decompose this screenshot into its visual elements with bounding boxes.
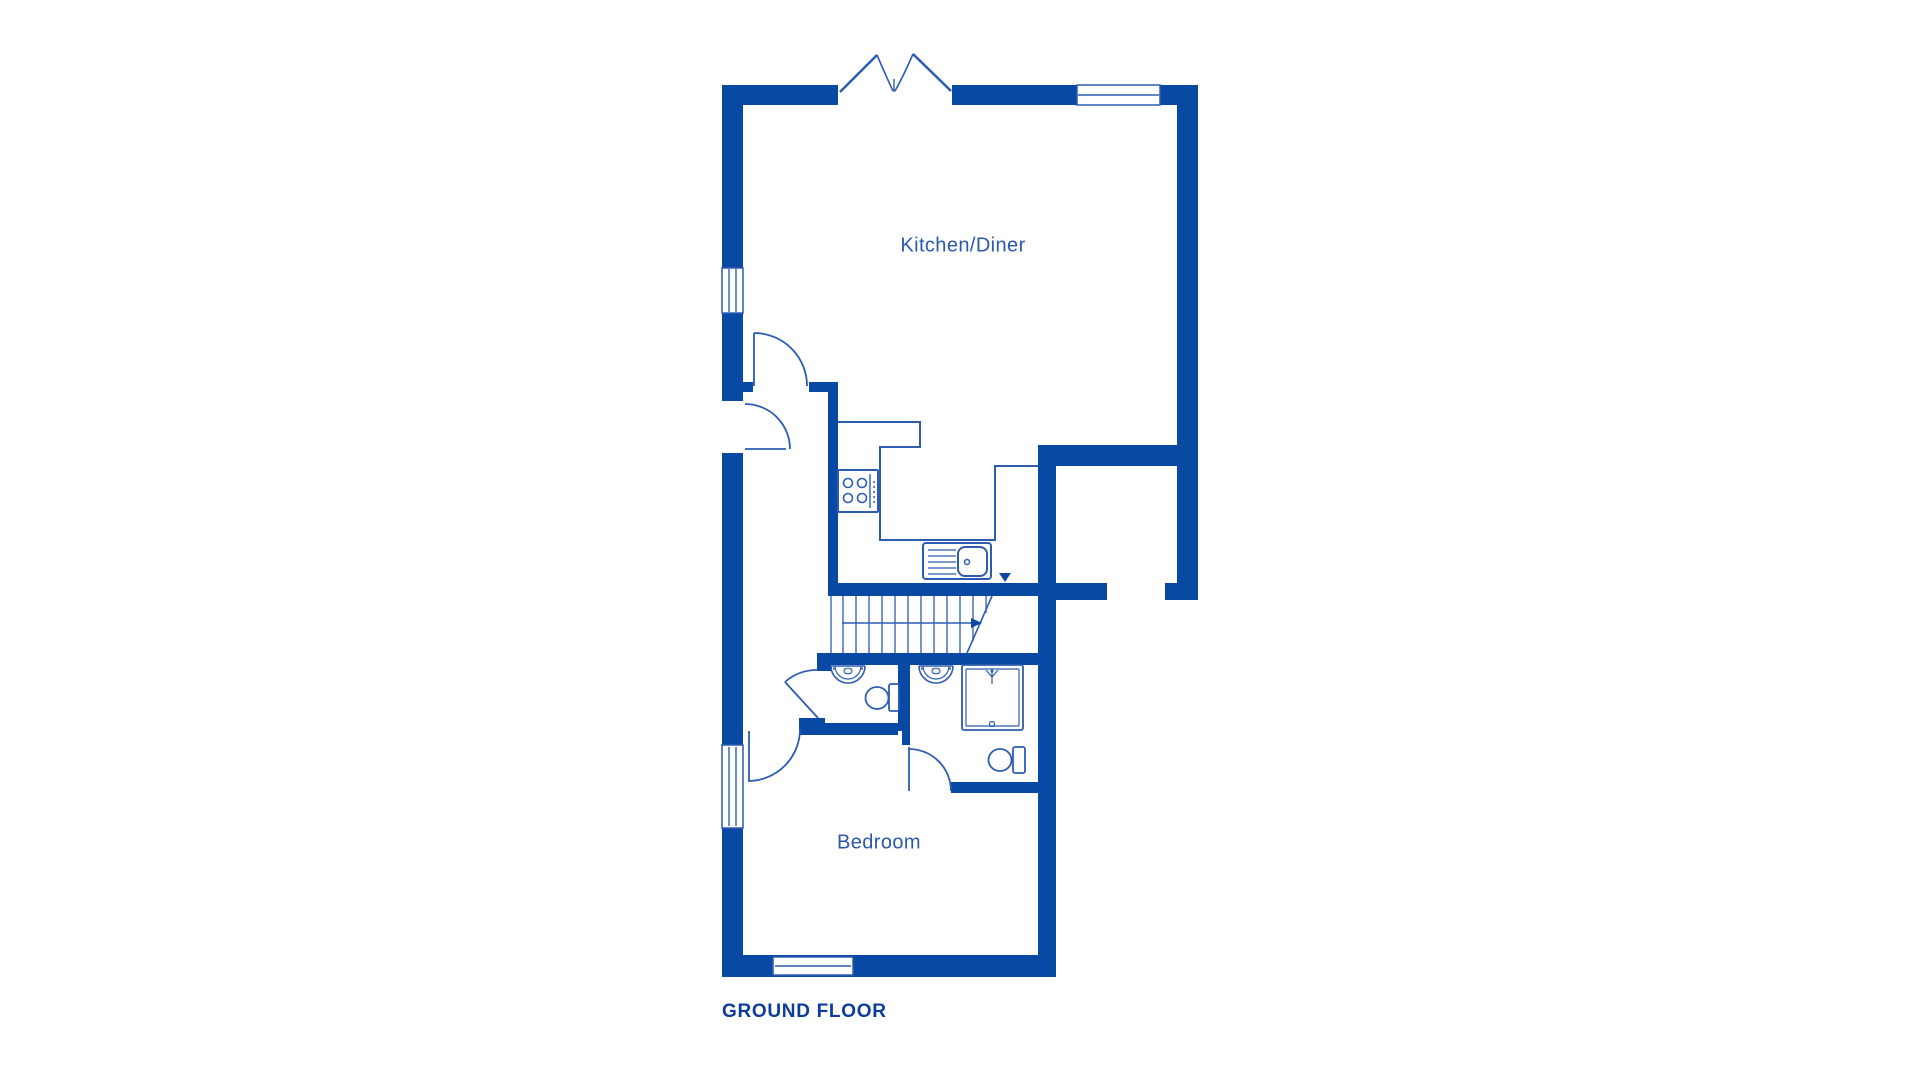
- wall-segment: [722, 828, 743, 977]
- fixture-outline: [889, 684, 899, 711]
- fixture-dot: [873, 501, 875, 503]
- plan-arc: [748, 729, 800, 781]
- fixture-dot: [991, 670, 994, 673]
- fixture-ellipse: [932, 668, 940, 674]
- fixture-circle: [858, 479, 867, 488]
- wall-segment: [828, 583, 1039, 596]
- wall-segment: [1038, 583, 1107, 600]
- plan-line: [785, 682, 818, 718]
- plan-arc: [909, 749, 951, 791]
- plan-arc: [895, 54, 913, 91]
- floor-title: GROUND FLOOR: [722, 1001, 887, 1023]
- plan-arc: [745, 404, 790, 449]
- window: [722, 745, 743, 828]
- wall-segment: [809, 382, 838, 392]
- wall-segment: [1038, 445, 1178, 466]
- fixture-ellipse: [989, 749, 1012, 771]
- fixture-ellipse: [844, 668, 852, 674]
- floor-plan-drawing: [0, 0, 1920, 1080]
- room-label-kitchen-diner: Kitchen/Diner: [900, 235, 1025, 258]
- fixture-circle: [844, 479, 853, 488]
- plan-marker: [999, 573, 1011, 582]
- fixture-dot: [873, 486, 875, 488]
- wall-segment: [951, 782, 1055, 793]
- plan-arc: [877, 55, 893, 91]
- wall-segment: [1177, 85, 1198, 583]
- floor-plan-page: Kitchen/Diner Bedroom GROUND FLOOR: [0, 0, 1920, 1080]
- kitchen-counter: [838, 422, 1038, 540]
- wall-segment: [722, 453, 743, 745]
- fixture-circle: [844, 494, 853, 503]
- wall-segment: [817, 665, 831, 671]
- fixture-circle: [858, 494, 867, 503]
- wall-segment: [1038, 445, 1056, 977]
- plan-marker: [971, 618, 982, 628]
- fixture-dot: [833, 667, 835, 669]
- fixture-circle: [965, 560, 970, 565]
- plan-line: [840, 55, 877, 92]
- fixture-outline: [1013, 747, 1025, 773]
- wall-segment: [1165, 583, 1198, 600]
- wall-segment: [817, 653, 1055, 665]
- plan-arc: [754, 333, 807, 386]
- plan-arc: [785, 670, 818, 682]
- fixture-outline: [958, 547, 987, 576]
- window: [722, 268, 743, 313]
- wall-segment: [802, 723, 898, 735]
- fixture-outline: [838, 470, 878, 512]
- wall-segment: [722, 85, 743, 268]
- fixture-dot: [873, 491, 875, 493]
- wall-segment: [828, 382, 838, 587]
- wall-segment: [902, 731, 910, 745]
- fixture-dot: [949, 667, 951, 669]
- fixture-ellipse: [866, 687, 889, 709]
- room-label-bedroom: Bedroom: [837, 832, 921, 855]
- wall-segment: [952, 85, 1198, 105]
- plan-line: [913, 54, 951, 91]
- fixture-dot: [861, 667, 863, 669]
- wall-segment: [722, 955, 1055, 977]
- fixture-dot: [921, 667, 923, 669]
- plan-line: [967, 596, 992, 653]
- fixture-dot: [873, 496, 875, 498]
- wall-segment: [722, 382, 753, 392]
- fixture-dot: [873, 481, 875, 483]
